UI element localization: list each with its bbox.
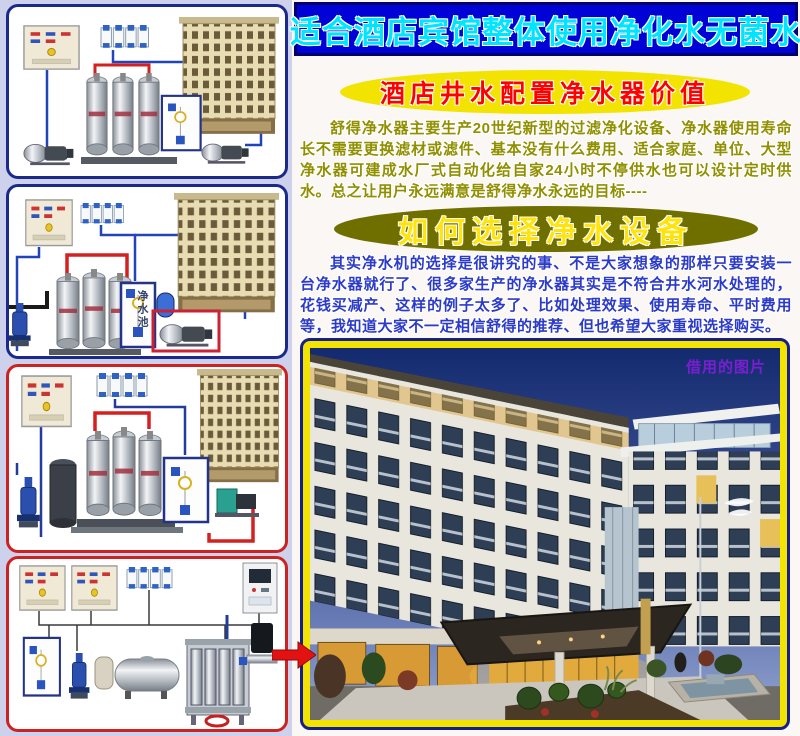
hotel-photo-frame: 借用的图片 bbox=[300, 338, 790, 730]
horizontal-tank-icon bbox=[115, 656, 179, 699]
circuit-breaker-icon bbox=[81, 203, 124, 223]
control-box-icon bbox=[22, 376, 71, 426]
red-arrow-icon bbox=[272, 641, 316, 669]
page-root: 净水池 bbox=[0, 0, 800, 736]
choose-paragraph: 其实净水机的选择是很讲究的事、不是大家想象的那样只要安装一台净水器就行了、很多家… bbox=[300, 253, 792, 337]
building-icon bbox=[197, 369, 282, 482]
control-box-icon bbox=[26, 200, 72, 246]
control-cabinet-icon bbox=[243, 563, 277, 613]
dosing-tank-icon bbox=[95, 657, 113, 689]
pump-icon bbox=[160, 325, 212, 347]
pressure-vessel-icon bbox=[157, 293, 174, 317]
choose-section-title: 如何选择净水设备 bbox=[398, 207, 694, 251]
diagram-panel-1 bbox=[6, 4, 288, 179]
choose-section-title-badge: 如何选择净水设备 bbox=[334, 206, 758, 252]
vertical-pump-icon bbox=[9, 303, 31, 346]
tank-label: 净水池 bbox=[135, 290, 149, 346]
raw-pipe-icon bbox=[9, 291, 47, 307]
building-icon bbox=[174, 193, 279, 312]
hotel-photo: 借用的图片 bbox=[310, 348, 780, 720]
control-box-icon bbox=[24, 26, 79, 69]
carbon-filter-icon bbox=[50, 465, 76, 523]
float-tank-icon bbox=[164, 458, 208, 522]
vertical-pump-icon bbox=[17, 477, 40, 527]
circuit-breaker-icon bbox=[101, 25, 149, 48]
control-box-icon bbox=[72, 566, 117, 610]
circuit-breaker-icon bbox=[127, 567, 172, 589]
photo-watermark: 借用的图片 bbox=[686, 356, 766, 377]
float-tank-icon bbox=[162, 96, 201, 150]
pump-icon bbox=[24, 144, 74, 165]
filter-bank-icon bbox=[185, 639, 251, 725]
drain-ring-icon bbox=[206, 716, 228, 726]
main-title-text: 适合酒店宾馆整体使用净化水无菌水 bbox=[290, 7, 800, 52]
circuit-breaker-icon bbox=[97, 373, 147, 397]
control-box-icon bbox=[20, 566, 65, 610]
value-section-title: 酒店井水配置净水器价值 bbox=[380, 74, 710, 110]
diagram-panel-2: 净水池 bbox=[6, 184, 288, 359]
pump-icon bbox=[202, 144, 249, 164]
vertical-pump-icon bbox=[69, 653, 89, 699]
filter-columns-icon bbox=[87, 427, 161, 516]
value-paragraph: 舒得净水器主要生产20世纪新型的过滤净化设备、净水器使用寿命长不需要更换滤材或滤… bbox=[300, 118, 792, 202]
main-title-banner: 适合酒店宾馆整体使用净化水无菌水 bbox=[294, 2, 798, 56]
right-column: 适合酒店宾馆整体使用净化水无菌水 酒店井水配置净水器价值 舒得净水器主要生产20… bbox=[292, 0, 800, 736]
filter-columns-icon bbox=[87, 73, 159, 155]
diagram-panel-3 bbox=[6, 364, 288, 553]
float-tank-icon bbox=[24, 638, 60, 696]
value-section-title-badge: 酒店井水配置净水器价值 bbox=[340, 70, 750, 114]
diagram-panel-4 bbox=[6, 556, 288, 732]
